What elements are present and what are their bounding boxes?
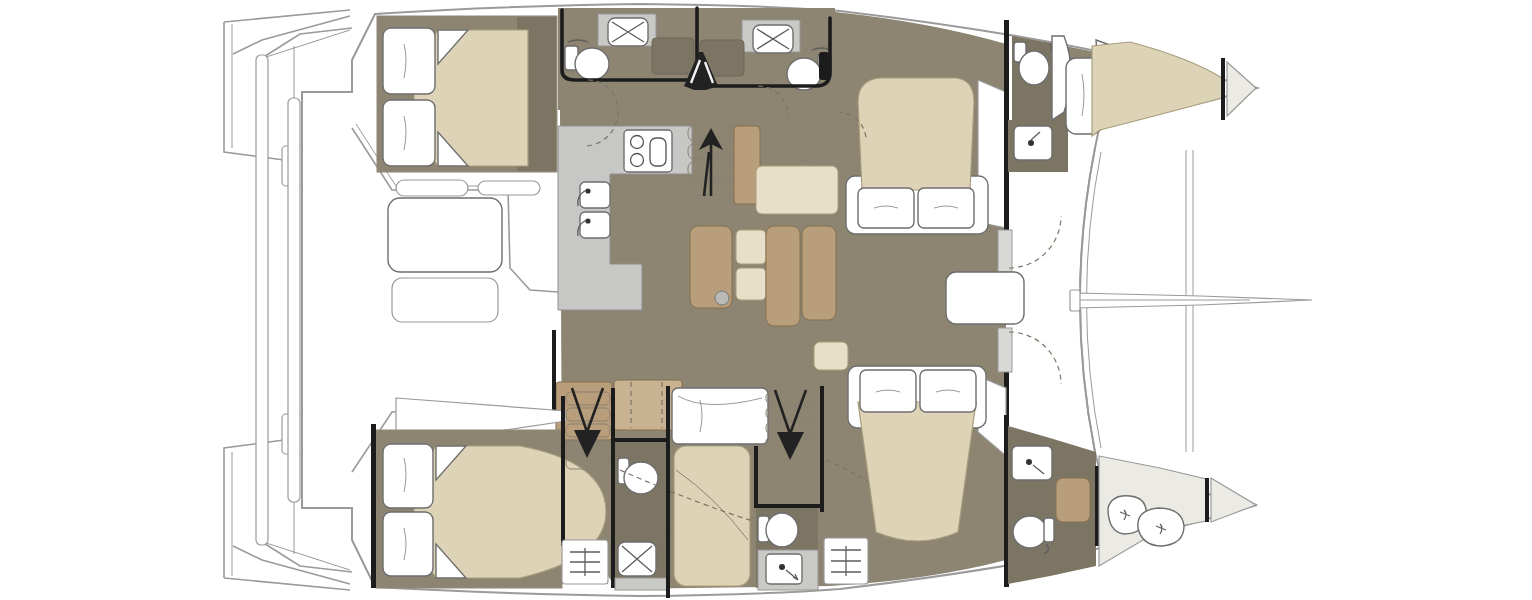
door-sill xyxy=(998,328,1012,372)
berth-head xyxy=(672,388,768,444)
cabinet xyxy=(1056,478,1090,522)
seat-cushion xyxy=(814,342,848,370)
wall xyxy=(611,388,615,588)
pillow-icon xyxy=(860,370,916,412)
seat-cushion xyxy=(736,268,766,300)
engine-hatch-icon xyxy=(824,538,868,584)
port-hull-forward-cabin xyxy=(1008,36,1256,172)
bed-icon xyxy=(1092,42,1222,136)
engine-hatch-icon xyxy=(562,540,608,584)
pillow-icon xyxy=(858,188,914,228)
wall xyxy=(561,396,565,546)
catamaran-floor-plan xyxy=(0,0,1532,600)
pillow-icon xyxy=(918,188,974,228)
foredeck-seat xyxy=(946,272,1024,324)
cockpit-bench xyxy=(392,278,498,322)
sofa xyxy=(766,226,800,326)
pillow-icon xyxy=(383,28,435,94)
table-leg xyxy=(715,291,729,305)
hull-window xyxy=(478,181,540,195)
pillow-icon xyxy=(920,370,976,412)
bow-tip xyxy=(1211,478,1256,522)
bow-bulkhead xyxy=(1205,478,1209,522)
port-hull-aft-cabin xyxy=(377,16,557,196)
sofa xyxy=(756,166,838,214)
starboard-heads-aft xyxy=(613,438,669,590)
bow-tip xyxy=(1227,62,1256,116)
sink-icon xyxy=(1014,126,1052,160)
seat-cushion xyxy=(736,230,766,264)
port-hull-mid-cabin xyxy=(838,78,1006,234)
hull-window xyxy=(396,180,468,196)
pillow-icon xyxy=(383,512,433,576)
cabin-bulkhead xyxy=(371,424,376,588)
door-sill xyxy=(998,230,1012,272)
cockpit-table xyxy=(388,198,502,272)
toilet-icon xyxy=(758,513,798,547)
sink-icon xyxy=(766,554,802,584)
sail-locker xyxy=(1099,456,1256,566)
double-bed-icon xyxy=(858,78,974,190)
vanity-counter xyxy=(652,38,694,74)
stove-icon xyxy=(624,130,672,172)
pillow-icon xyxy=(383,444,433,508)
bowsprit xyxy=(1070,290,1312,311)
shower-icon xyxy=(1012,446,1052,480)
shower-icon xyxy=(618,542,656,576)
salon-side-wall xyxy=(552,330,556,414)
bow-bulkhead xyxy=(1221,58,1225,120)
sofa xyxy=(802,226,836,320)
shower-icon xyxy=(608,18,648,46)
locker xyxy=(819,52,829,80)
shower-icon xyxy=(753,25,793,53)
floor-plan-svg xyxy=(0,0,1532,600)
double-bed-icon xyxy=(858,402,976,541)
pillow-icon xyxy=(383,100,435,166)
